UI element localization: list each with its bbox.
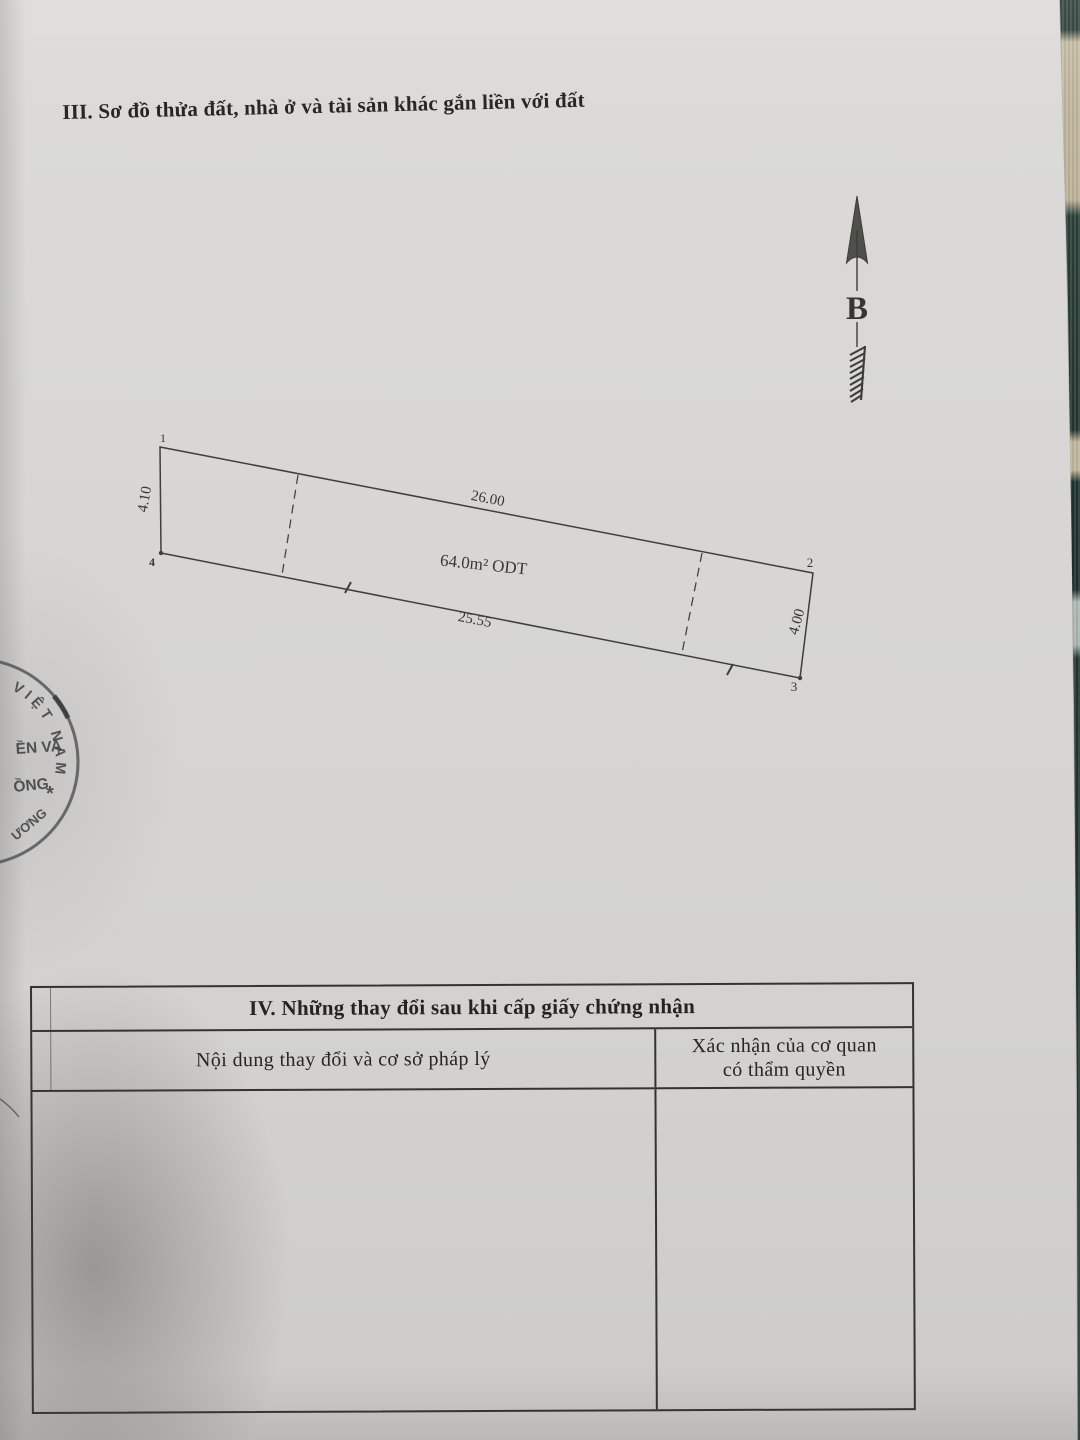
header-authority-line2: có thẩm quyền [723, 1057, 846, 1082]
svg-text:VIỆT NAM: VIỆT NAM [10, 679, 69, 779]
official-seal: VIỆT NAM * ỀN VA ỒNG ƯƠNG [0, 659, 78, 865]
subdivision-line-right [682, 553, 702, 653]
boundary-tick-1 [345, 582, 351, 593]
plot-bottom-dimension: 25.55 [457, 609, 493, 631]
plot-left-dimension: 4.10 [135, 485, 155, 514]
land-plot-diagram: 1 2 3 4 4.10 26.00 64.0m² ODT 25.55 4.00 [135, 431, 813, 694]
seal-text-line-2: ỒNG [13, 774, 50, 796]
header-cell-content-change: Nội dung thay đổi và cơ sở pháp lý [32, 1029, 656, 1090]
subdivision-line-left [282, 475, 298, 575]
table-header-row: Nội dung thay đổi và cơ sở pháp lý Xác n… [32, 1028, 912, 1092]
arrow-fletching [850, 346, 865, 402]
corner-3-marker [798, 676, 802, 680]
corner-3-label: 3 [791, 679, 798, 694]
page-edge [1060, 0, 1078, 1440]
corner-2-label: 2 [807, 555, 814, 570]
boundary-tick-2 [727, 664, 733, 675]
section-iv-table: IV. Những thay đổi sau khi cấp giấy chứn… [30, 982, 916, 1414]
seal-arc-top-text: VIỆT NAM [10, 679, 69, 779]
section-iv-title: IV. Những thay đổi sau khi cấp giấy chứn… [32, 984, 912, 1032]
corner-4-label: 4 [149, 555, 155, 569]
table-body-row [32, 1088, 913, 1412]
seal-text-line-1: ỀN VA [15, 738, 62, 758]
plot-top-dimension: 26.00 [470, 488, 506, 510]
corner-4-marker [159, 551, 163, 555]
page-content: III. Sơ đồ thửa đất, nhà ở và tài sản kh… [0, 0, 1080, 1440]
plot-area-label: 64.0m² ODT [439, 551, 528, 579]
seal-ink-smudge [54, 696, 68, 718]
corner-1-label: 1 [160, 431, 166, 445]
header-cell-authority: Xác nhận của cơ quan có thẩm quyền [656, 1028, 912, 1087]
north-label: B [846, 291, 868, 327]
header-authority-line1: Xác nhận của cơ quan [692, 1033, 877, 1058]
page-crease-mark [0, 1099, 19, 1117]
north-arrow-icon: B [846, 196, 868, 402]
photographed-certificate-page: III. Sơ đồ thửa đất, nhà ở và tài sản kh… [0, 0, 1080, 1440]
body-cell-content-change [32, 1089, 657, 1412]
body-cell-authority [656, 1088, 913, 1409]
